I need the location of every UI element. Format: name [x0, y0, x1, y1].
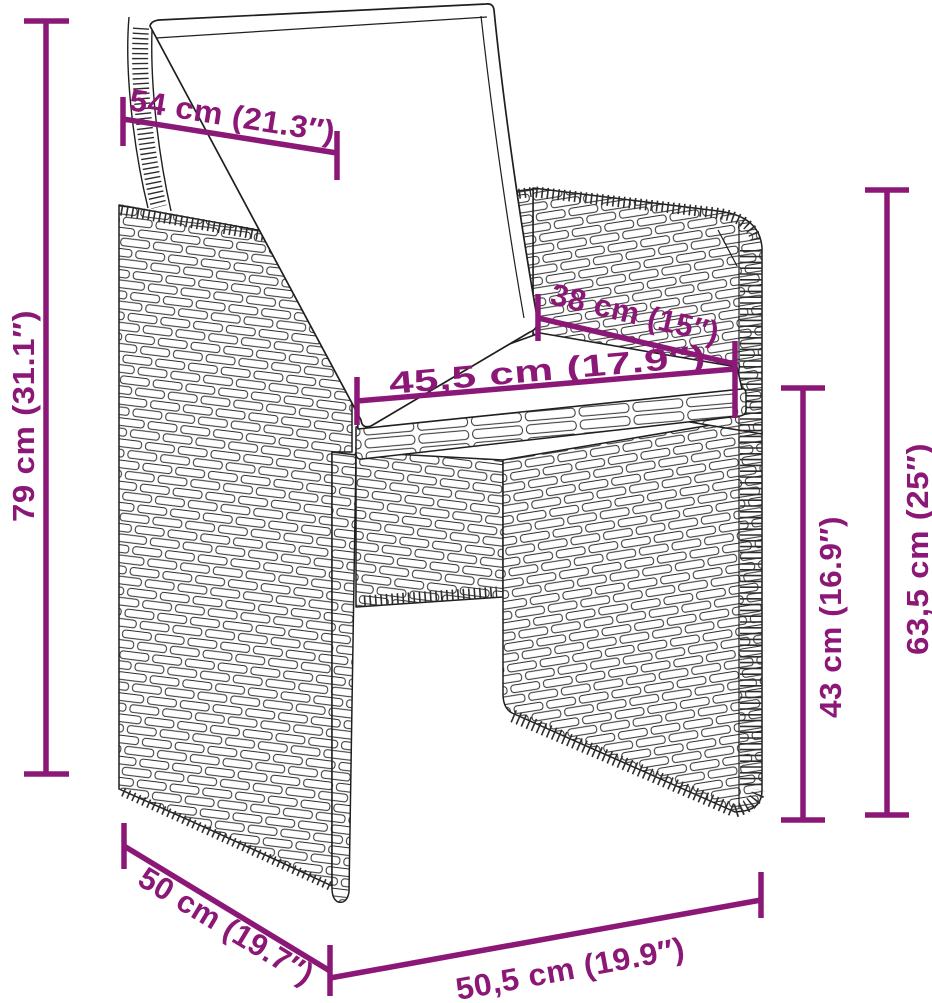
dimension-label: 50 cm (19.7″): [132, 860, 320, 992]
dimension-label: 50,5 cm (19.9″): [453, 931, 688, 1003]
chair-drawing: [119, 4, 762, 902]
front-left-leg: [332, 452, 356, 902]
dimension-label: 43 cm (16.9″): [813, 516, 848, 718]
dimension-diagram-canvas: 54 cm (21.3″) 79 cm (31.1″) 38 cm (15″) …: [0, 0, 932, 1003]
dimension-label: 63,5 cm (25″): [900, 443, 932, 655]
dimension-label: 79 cm (31.1″): [6, 310, 41, 522]
right-side-inner-panel: [503, 420, 762, 812]
dimension-total-height: 79 cm (31.1″): [6, 21, 69, 774]
product-dimension-image: 54 cm (21.3″) 79 cm (31.1″) 38 cm (15″) …: [0, 0, 932, 1003]
dimension-base-width: 50,5 cm (19.9″): [330, 872, 761, 1003]
front-apron-panel: [356, 452, 503, 607]
dimension-seat-height: 43 cm (16.9″): [781, 388, 848, 820]
dimension-armrest-height: 63,5 cm (25″): [865, 190, 932, 815]
